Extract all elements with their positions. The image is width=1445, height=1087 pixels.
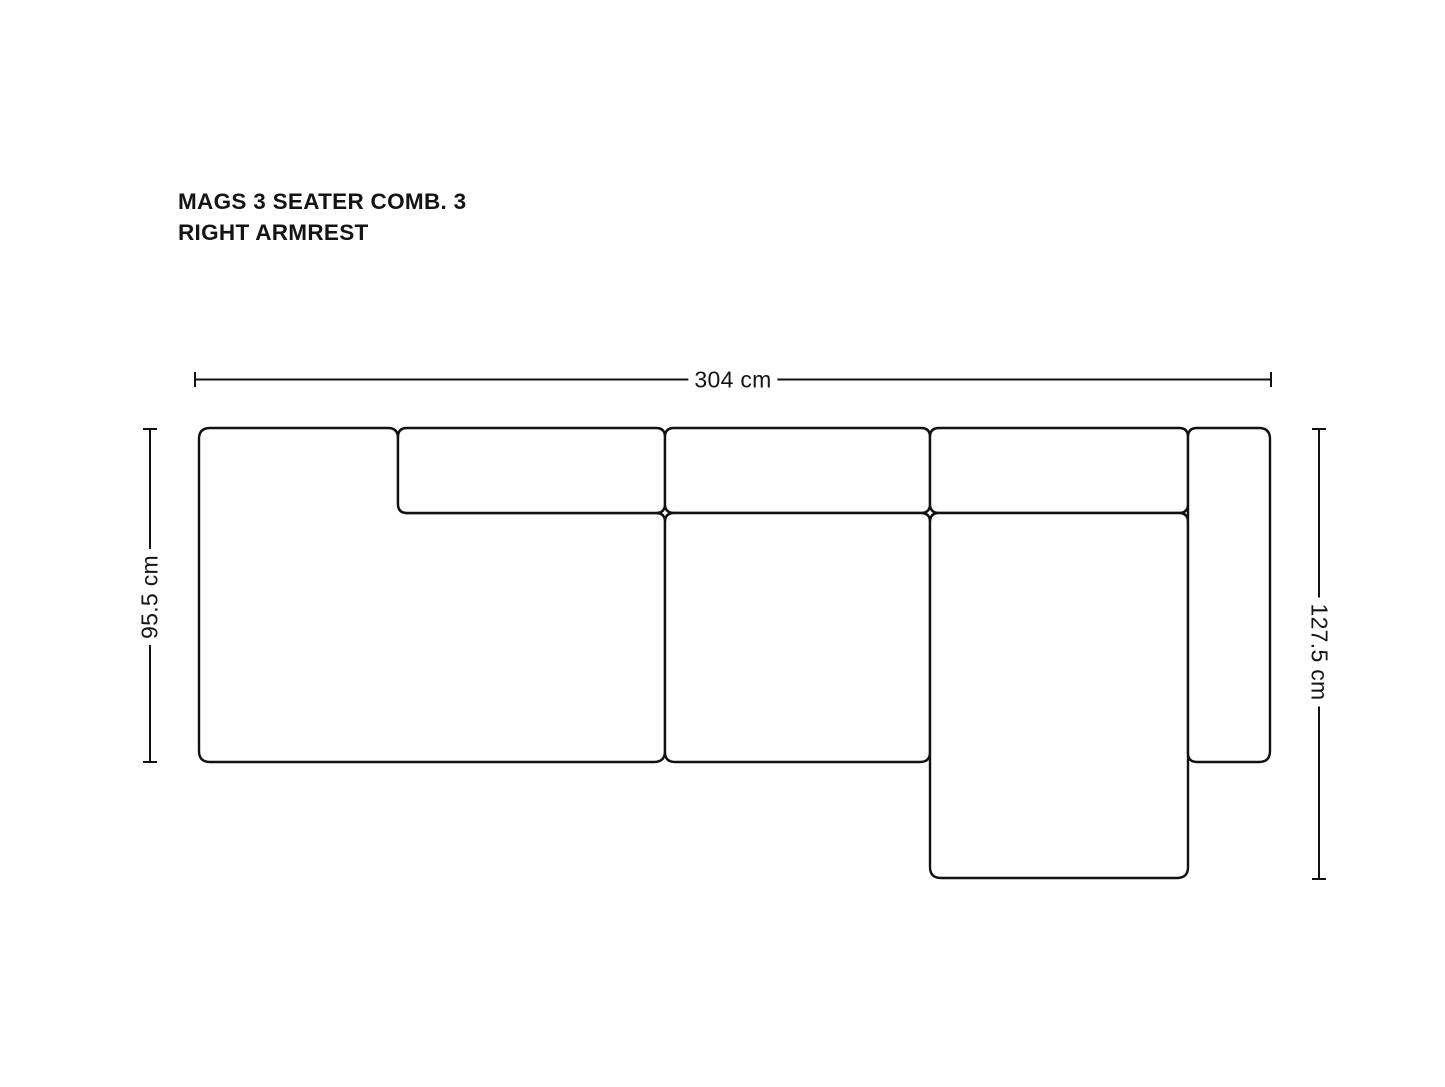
product-title-line1: MAGS 3 SEATER COMB. 3 [178,186,466,217]
dimension-width-label: 304 cm [688,367,777,394]
module-left-backrest-outline [398,428,665,513]
dimension-left-depth-label: 95.5 cm [137,549,164,645]
product-title: MAGS 3 SEATER COMB. 3 RIGHT ARMREST [178,186,466,248]
module-chaise-seat-outline [930,513,1188,878]
module-middle-seat-outline [665,513,930,762]
sofa-top-view-diagram [0,0,1445,1087]
product-dimension-page: MAGS 3 SEATER COMB. 3 RIGHT ARMREST 304 … [0,0,1445,1087]
module-middle-backrest-outline [665,428,930,513]
module-right-armrest-outline [1188,428,1270,762]
dimension-right-depth-label: 127.5 cm [1306,597,1333,706]
module-chaise-backrest-outline [930,428,1188,513]
product-title-line2: RIGHT ARMREST [178,217,466,248]
sofa-modules [199,428,1270,878]
